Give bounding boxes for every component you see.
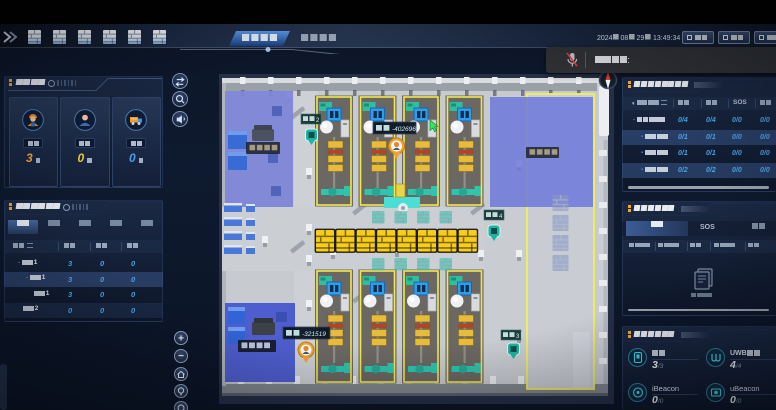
svg-text:−: − (178, 351, 184, 362)
svg-text:-321519: -321519 (302, 331, 326, 338)
svg-text:+: + (178, 334, 184, 345)
svg-text:-402696: -402696 (392, 126, 416, 133)
